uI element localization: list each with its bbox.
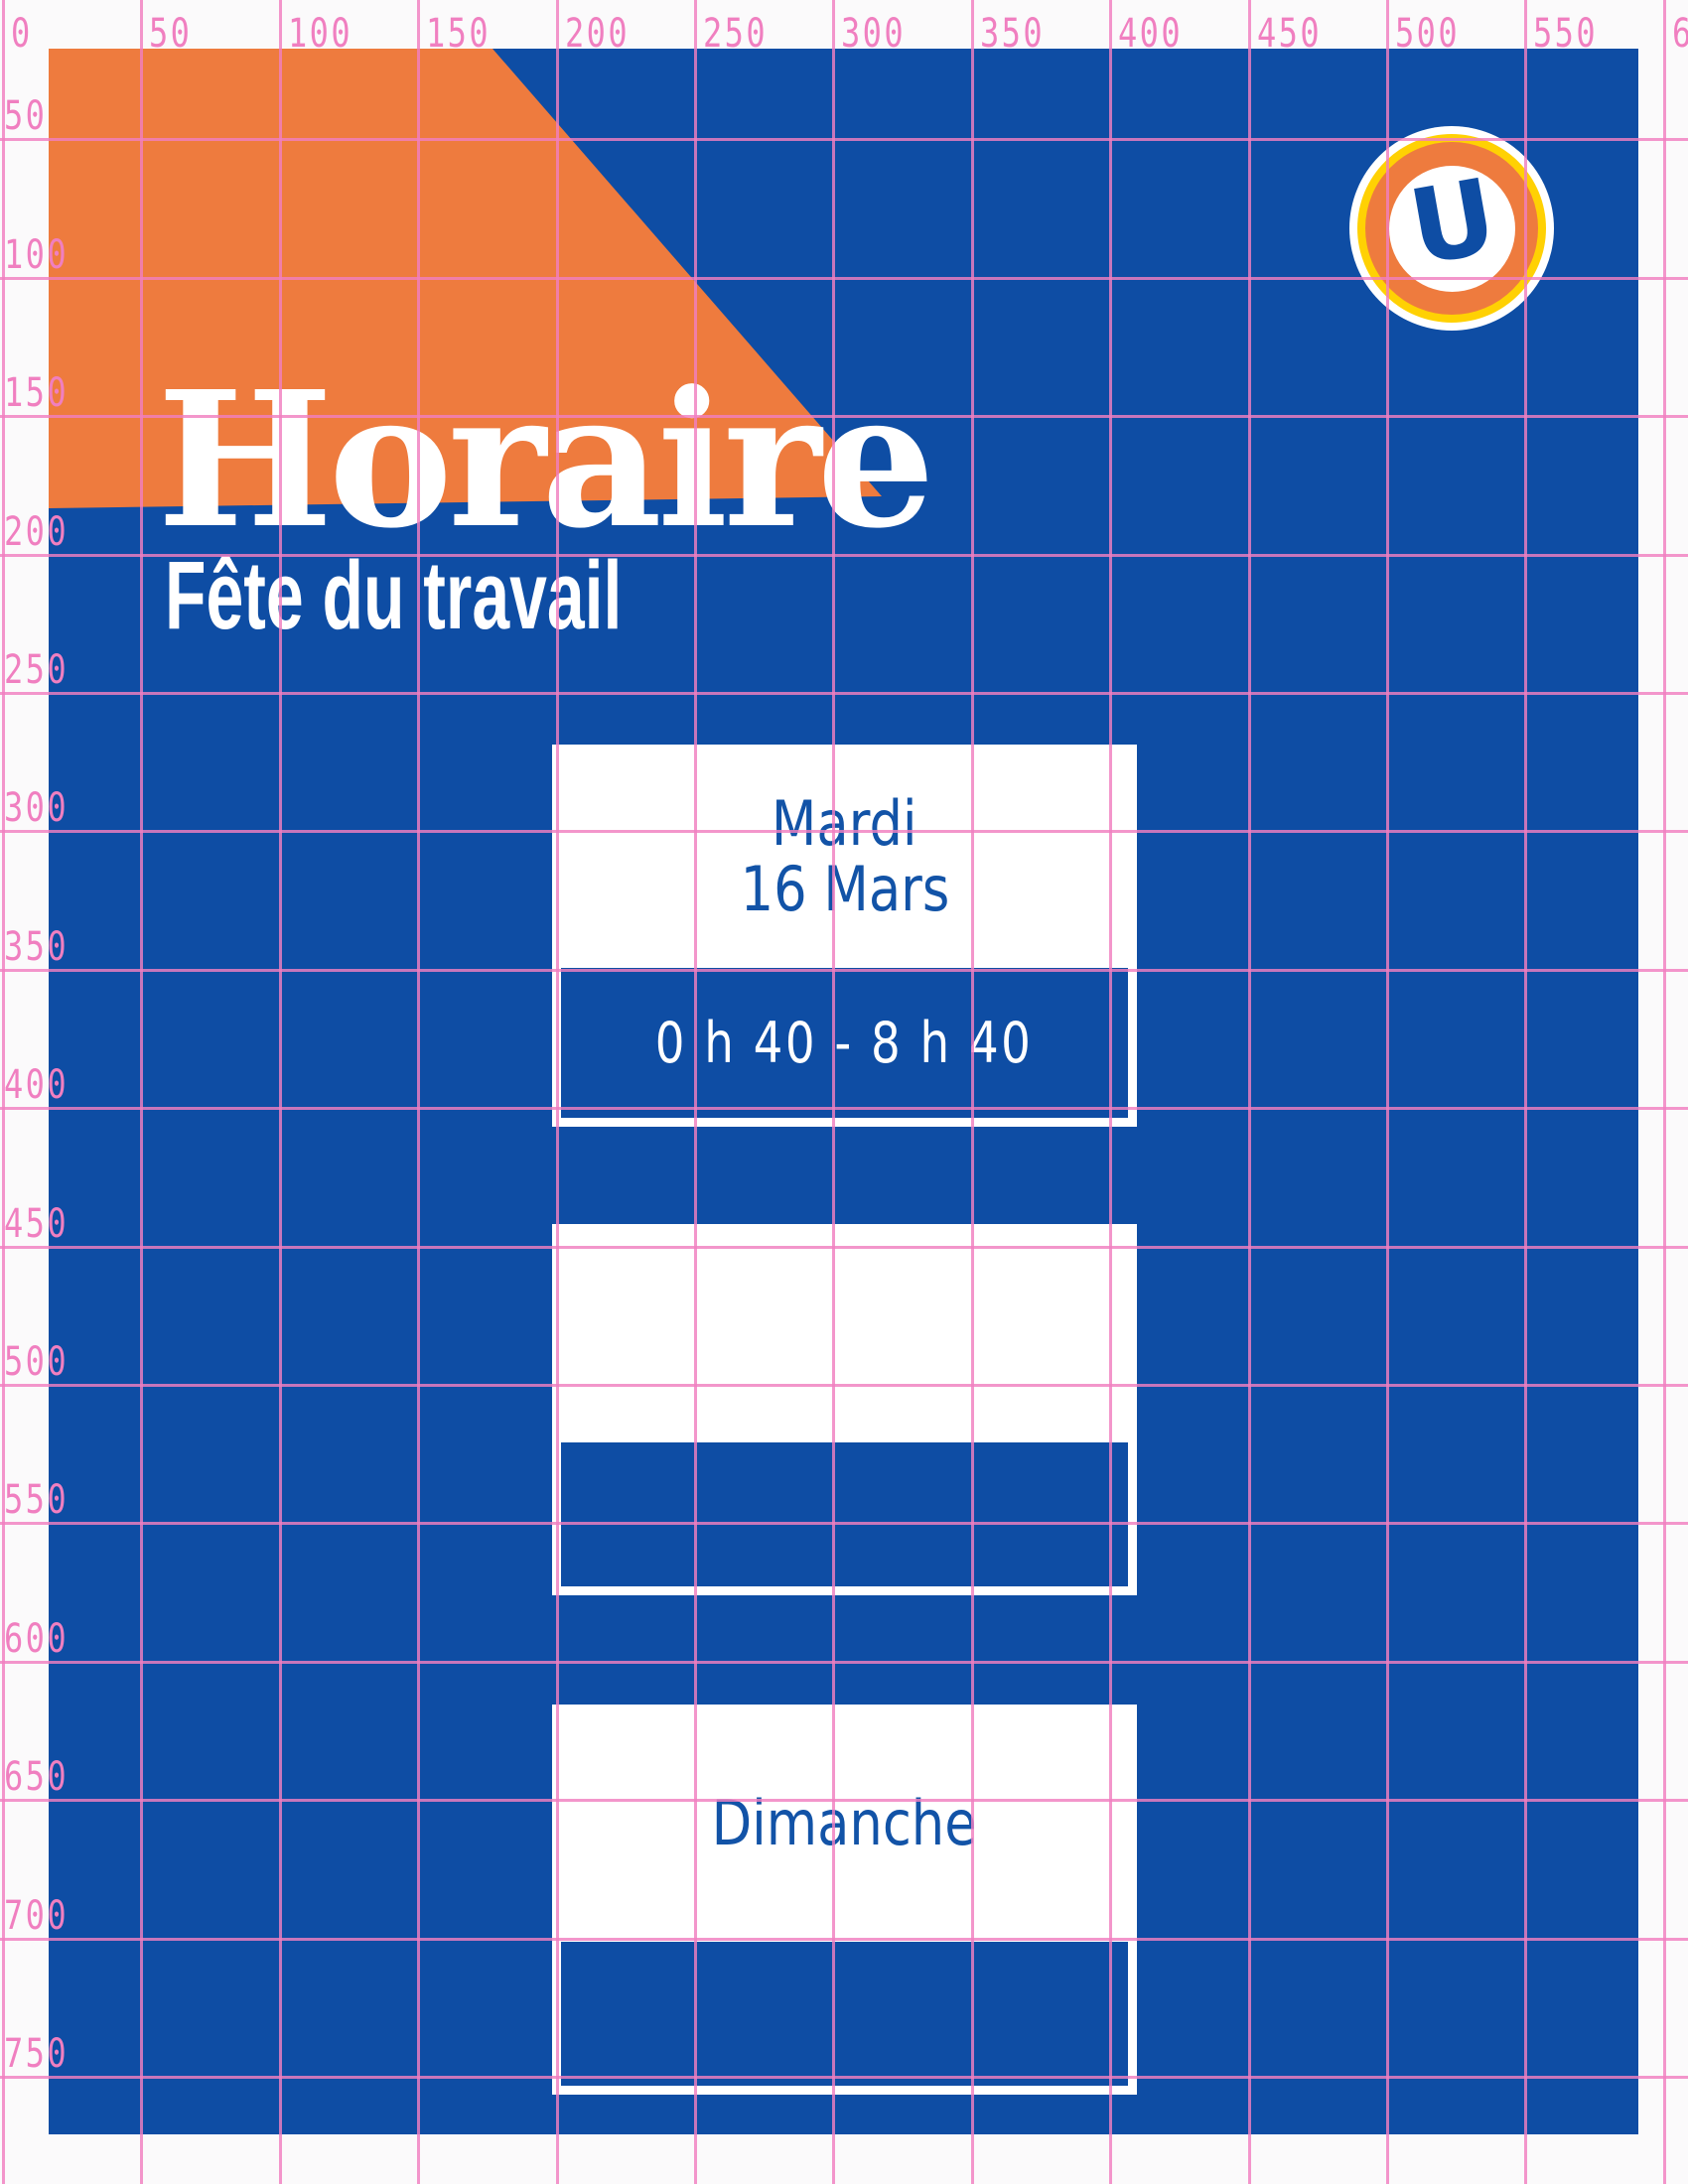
card-time-chip bbox=[561, 1942, 1128, 2086]
grid-label-top: 550 bbox=[1533, 14, 1598, 54]
grid-label-top: 500 bbox=[1395, 14, 1460, 54]
card-time-label: 0 h 40 - 8 h 40 bbox=[655, 1011, 1034, 1076]
card-date-label: 16 Mars bbox=[740, 857, 949, 922]
card-day-section bbox=[552, 1224, 1137, 1442]
card-day-label: Mardi bbox=[772, 791, 917, 857]
design-canvas: U Horaire Fête du travail Mardi 16 Mars … bbox=[0, 0, 1688, 2184]
grid-label-top: 0 bbox=[11, 14, 33, 54]
schedule-card-mardi: Mardi 16 Mars 0 h 40 - 8 h 40 bbox=[552, 745, 1137, 1127]
grid-label-top: 200 bbox=[565, 14, 630, 54]
grid-label-top: 150 bbox=[426, 14, 491, 54]
schedule-card-dimanche: Dimanche bbox=[552, 1705, 1137, 2095]
grid-label-top: 100 bbox=[288, 14, 352, 54]
grid-label-top: 450 bbox=[1257, 14, 1322, 54]
grid-label-top: 600 bbox=[1672, 14, 1688, 54]
logo-yellow-ring: U bbox=[1357, 134, 1546, 323]
card-time-chip: 0 h 40 - 8 h 40 bbox=[561, 968, 1128, 1118]
grid-label-left: 50 bbox=[4, 96, 47, 136]
poster-title: Horaire bbox=[157, 367, 930, 554]
grid-label-top: 300 bbox=[841, 14, 906, 54]
grid-label-top: 350 bbox=[980, 14, 1045, 54]
logo-orange-ring: U bbox=[1365, 142, 1538, 315]
grid-label-top: 250 bbox=[703, 14, 768, 54]
grid-line-vertical bbox=[2, 0, 5, 2184]
grid-label-top: 50 bbox=[149, 14, 192, 54]
schedule-card-empty bbox=[552, 1224, 1137, 1595]
card-day-section: Mardi 16 Mars bbox=[552, 745, 1137, 968]
card-day-label: Dimanche bbox=[712, 1791, 977, 1856]
card-time-chip bbox=[561, 1442, 1128, 1586]
grid-line-vertical bbox=[1663, 0, 1666, 2184]
logo-outer-white-ring: U bbox=[1349, 126, 1554, 331]
grid-label-top: 400 bbox=[1118, 14, 1183, 54]
card-day-section: Dimanche bbox=[552, 1705, 1137, 1942]
logo-white-disc: U bbox=[1389, 166, 1515, 292]
u-logo: U bbox=[1349, 126, 1554, 331]
u-logo-letter: U bbox=[1402, 164, 1502, 280]
poster-subtitle: Fête du travail bbox=[165, 547, 622, 643]
